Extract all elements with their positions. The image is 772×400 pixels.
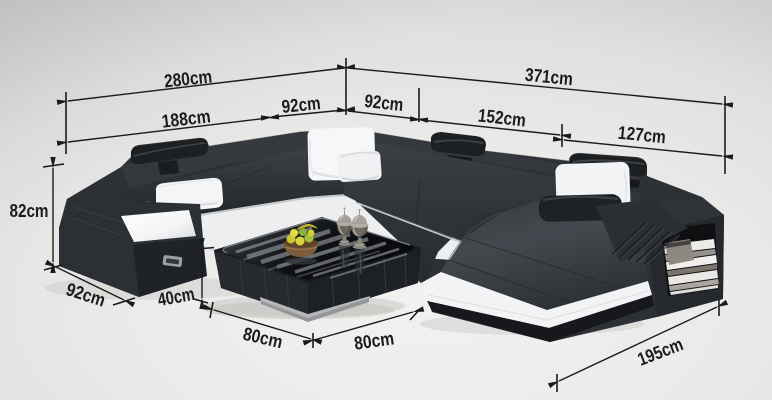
svg-text:82cm: 82cm	[10, 200, 49, 221]
svg-text:92cm: 92cm	[363, 90, 404, 115]
svg-text:92cm: 92cm	[281, 92, 322, 117]
